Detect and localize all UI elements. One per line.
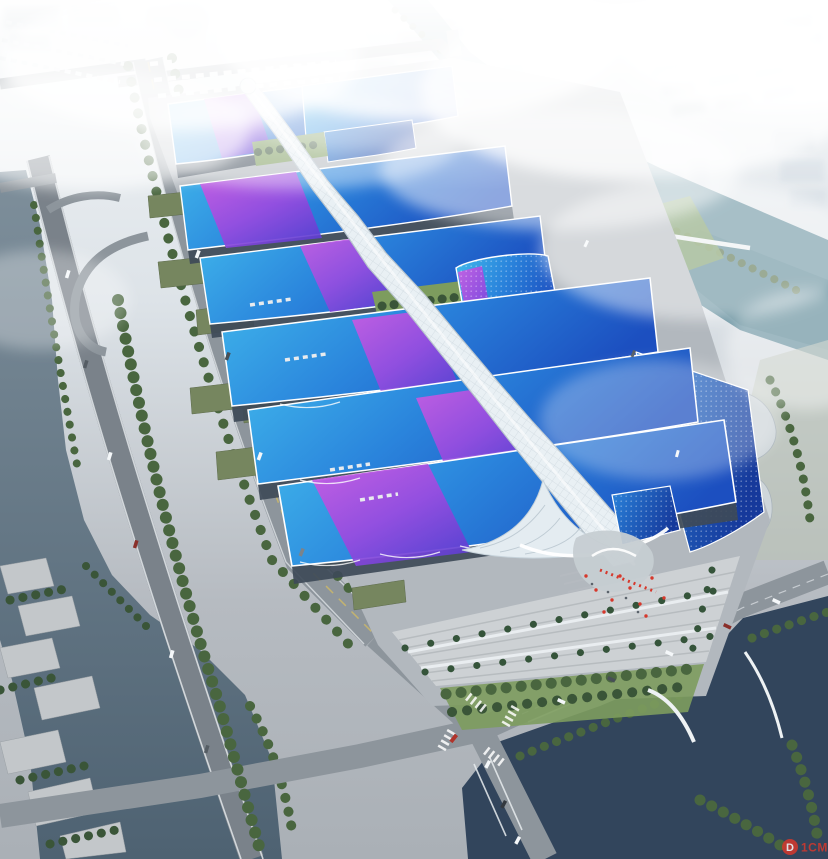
watermark: D 1CM bbox=[782, 839, 828, 855]
watermark-badge-letter: D bbox=[786, 842, 794, 854]
watermark-text: 1CM bbox=[801, 841, 828, 855]
aerial-rendering: D 1CM bbox=[0, 0, 828, 859]
scene-root: D 1CM bbox=[0, 0, 828, 859]
